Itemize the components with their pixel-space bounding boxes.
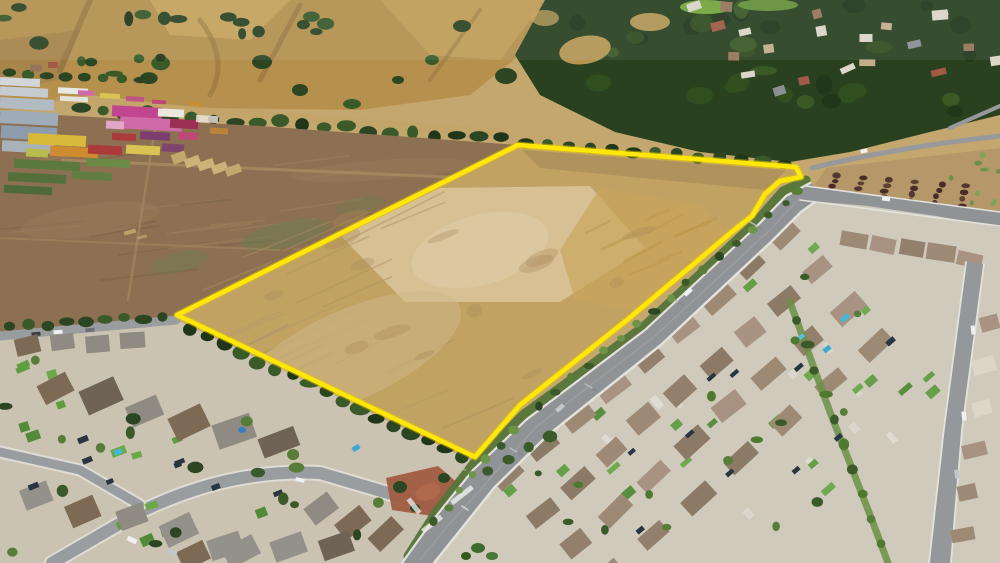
backyard-trees	[839, 438, 849, 450]
orchard-row	[961, 183, 970, 188]
yard-trees	[58, 435, 66, 444]
canopy-texture	[586, 74, 611, 91]
oak-tree	[392, 76, 404, 84]
treeline	[71, 103, 91, 113]
flower-bed	[210, 128, 228, 135]
treeline-upper-left	[98, 74, 109, 83]
orchard-row	[883, 183, 891, 188]
parkway-trees	[715, 252, 724, 261]
flower-bed	[88, 145, 122, 156]
flower-bed	[196, 115, 218, 123]
orchard-row	[959, 196, 965, 202]
street-trees	[543, 430, 557, 442]
orchard-row	[828, 184, 836, 189]
backyard-trees	[819, 391, 833, 398]
treeline	[469, 131, 488, 141]
yard-trees	[7, 548, 17, 557]
farm-building	[30, 65, 42, 72]
parked-car	[53, 330, 62, 335]
flower-bed	[162, 143, 184, 152]
yard-trees	[645, 490, 653, 499]
parkway-trees	[632, 320, 641, 328]
young-trees	[992, 199, 997, 203]
backyard-trees	[877, 539, 886, 548]
west-street-trees	[135, 315, 153, 324]
palm-tree	[461, 552, 471, 560]
palm-tree	[486, 552, 498, 560]
yard-trees	[278, 493, 288, 505]
parkway-trees	[764, 211, 772, 218]
flower-bed	[126, 145, 160, 156]
west-street-trees	[22, 319, 35, 330]
treeline-upper-left	[78, 73, 91, 82]
parkway-trees	[682, 279, 690, 286]
yard-trees	[723, 456, 733, 465]
yard-trees	[574, 481, 584, 487]
yard-trees	[290, 501, 299, 508]
young-trees	[980, 152, 986, 158]
treeline	[271, 114, 289, 127]
yard-trees	[31, 356, 40, 365]
canopy-texture	[686, 87, 713, 105]
treeline	[493, 132, 509, 142]
parkway-trees	[567, 373, 574, 382]
yard-trees	[373, 497, 384, 507]
orchard-row	[933, 193, 939, 199]
palm-tree	[471, 543, 485, 553]
orchard-row	[859, 176, 867, 181]
canopy-texture	[816, 75, 832, 95]
treeline	[337, 120, 356, 131]
west-street-trees	[59, 317, 74, 326]
parkway-trees	[617, 335, 625, 341]
yard-trees	[535, 470, 542, 476]
backyard-trees	[801, 341, 815, 349]
flower-bed	[158, 108, 184, 117]
backyard-trees	[858, 490, 868, 498]
backyard-trees	[809, 366, 818, 374]
orchard-row	[832, 172, 840, 178]
orchard-row	[909, 191, 915, 198]
young-trees	[974, 161, 982, 166]
canopy-texture	[822, 94, 841, 109]
park-tree	[438, 473, 450, 483]
orchard-row	[880, 189, 889, 194]
yard-trees	[751, 436, 763, 443]
yard-trees	[57, 485, 68, 497]
parkway-trees	[481, 454, 491, 464]
street-trees	[524, 442, 534, 453]
yard-trees	[772, 522, 780, 532]
young-trees	[980, 168, 987, 172]
parkway-trees	[497, 442, 506, 450]
orchard-row	[936, 188, 942, 193]
corner-landscape	[791, 187, 803, 195]
yard-trees	[251, 468, 265, 478]
backyard-trees	[847, 464, 858, 474]
orchard-row	[854, 186, 862, 191]
canopy-texture	[947, 105, 963, 117]
yard-trees	[287, 449, 299, 460]
orchard-row	[910, 186, 918, 191]
house-row	[85, 334, 110, 353]
parkway-trees	[782, 200, 789, 206]
canopy-texture	[942, 93, 960, 107]
yard-trees	[840, 408, 848, 416]
flower-bed	[178, 132, 198, 140]
west-street-trees	[4, 322, 15, 331]
flower-bed	[100, 93, 120, 99]
aerial-photo	[0, 0, 1000, 563]
parkway-trees	[508, 425, 519, 434]
yard-trees	[289, 463, 305, 473]
orchard-row	[885, 177, 893, 183]
parkway-trees	[583, 363, 593, 370]
west-street-trees	[118, 313, 130, 322]
flower-bed	[78, 90, 94, 96]
orchard-row	[911, 180, 919, 184]
parkway-trees	[456, 487, 463, 494]
street-trees	[502, 455, 514, 464]
yard-trees	[662, 524, 671, 531]
treeline-upper-left	[59, 72, 73, 81]
yard-trees	[800, 274, 809, 280]
yard-trees	[707, 391, 716, 402]
parkway-trees	[535, 402, 543, 411]
yard-trees	[353, 529, 361, 540]
treeline	[98, 106, 109, 116]
backyard-trees	[830, 414, 839, 424]
yard-trees	[170, 527, 182, 537]
yard-trees	[563, 519, 574, 525]
canopy-texture	[838, 85, 858, 103]
hillside-homes	[859, 59, 875, 66]
flower-bed	[140, 131, 170, 141]
parkway-trees	[469, 471, 476, 478]
treeline	[448, 131, 466, 140]
flower-bed	[106, 121, 124, 130]
flower-bed	[152, 100, 166, 105]
parkway-trees	[698, 265, 707, 274]
oak-tree	[495, 68, 517, 84]
west-street-trees	[42, 321, 55, 331]
orchard-row	[857, 181, 864, 185]
yard-trees	[149, 540, 162, 547]
parkway-trees	[429, 517, 437, 526]
yard-trees	[187, 462, 203, 473]
backyard-trees	[792, 316, 801, 325]
orchard-row	[832, 179, 838, 183]
west-street-trees	[98, 315, 113, 324]
young-trees	[975, 191, 980, 196]
farm-building-red-roof	[48, 62, 58, 68]
backyard-trees	[867, 515, 876, 523]
yard-trees	[241, 416, 253, 426]
parked-car	[85, 328, 94, 333]
parkway-trees	[599, 346, 608, 354]
play-tarp	[238, 427, 246, 433]
oak-tree	[343, 99, 361, 109]
parkway-trees	[667, 294, 675, 302]
parkway-trees	[550, 389, 561, 396]
yard-trees	[96, 443, 105, 453]
yard-trees	[854, 311, 862, 318]
parkway-trees	[748, 226, 758, 234]
orchard-row	[960, 189, 968, 195]
orchard-row	[939, 181, 946, 187]
parkway-trees	[648, 308, 660, 315]
flower-bed	[170, 119, 198, 129]
yard-trees	[775, 419, 787, 426]
flower-bed	[126, 96, 144, 102]
treeline-upper-left	[134, 77, 148, 83]
house-row	[119, 331, 145, 349]
yard-trees	[126, 413, 141, 424]
flower-bed	[190, 102, 202, 107]
oak-tree	[292, 84, 308, 96]
yard-trees	[812, 497, 824, 507]
west-street-trees	[78, 317, 94, 328]
west-street-trees	[157, 312, 167, 322]
canopy-texture	[797, 95, 815, 109]
yard-trees	[791, 336, 800, 344]
park-tree	[393, 481, 407, 493]
parkway-trees	[444, 504, 453, 511]
flower-bed	[26, 148, 48, 157]
street-trees	[482, 466, 493, 475]
treeline-upper-left	[3, 69, 16, 77]
treeline-upper-left	[117, 74, 128, 83]
aerial-scene	[0, 0, 1000, 563]
yard-trees	[126, 426, 135, 439]
atmospheric-haze	[0, 0, 1000, 60]
young-trees	[970, 200, 974, 205]
flower-bed	[112, 133, 136, 141]
parkway-trees	[732, 240, 741, 247]
treeline-upper-left	[40, 72, 54, 79]
house-row	[50, 333, 75, 352]
young-trees	[949, 175, 954, 180]
yard-trees	[601, 525, 609, 535]
